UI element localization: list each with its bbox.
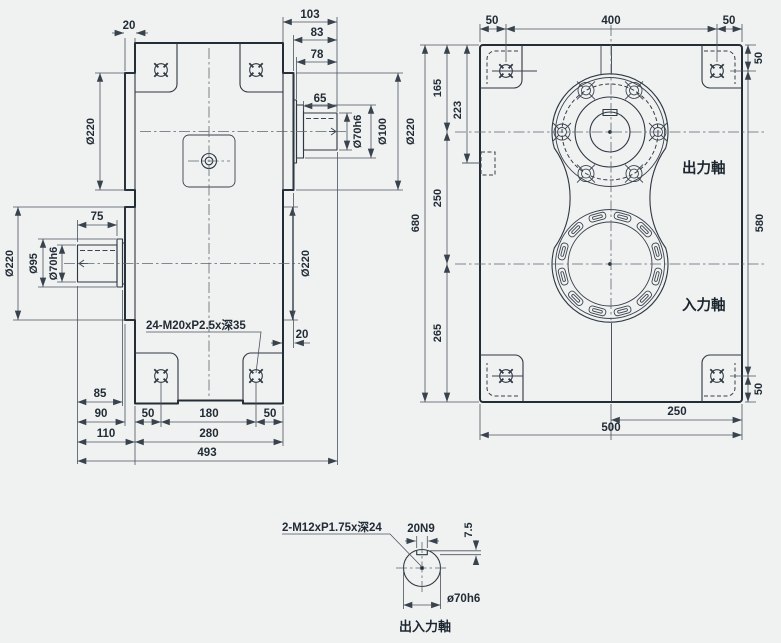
output-shaft-label: 出力軸 (682, 159, 726, 177)
dim-fv-165: 165 (432, 79, 444, 97)
dim-280: 280 (199, 428, 218, 440)
bottom-right-lug (243, 353, 283, 401)
lug-bolt-holes (154, 63, 262, 382)
dim-top-offset-20: 20 (123, 20, 136, 32)
dim-50a: 50 (142, 408, 155, 420)
dim-out-shaft-dia: Ø70h6 (352, 115, 364, 149)
shaft-end-detail: 2-M12xP1.75x深24 20N9 7.5 ø70h6 出入力軸 (282, 520, 481, 635)
dim-detail-shaft-dia: ø70h6 (447, 593, 480, 605)
side-view-dimensions: 20 103 83 78 65 Ø70h6 Ø100 Ø220 Ø220 (4, 9, 417, 465)
dim-90: 90 (95, 408, 108, 420)
dim-fv-top-50b: 50 (723, 15, 736, 27)
dim-110: 110 (97, 428, 116, 440)
dim-keyway-depth: 7.5 (463, 522, 475, 537)
dim-493: 493 (197, 447, 216, 459)
front-view: 出力軸 入力軸 50 400 50 50 580 50 680 165 (410, 15, 766, 440)
dim-65: 65 (314, 93, 327, 105)
dim-upper-boss-dia: Ø220 (85, 118, 97, 145)
dim-in-boss-dia: Ø220 (4, 250, 16, 277)
dim-keyway-width: 20N9 (407, 523, 435, 535)
dim-50b: 50 (264, 408, 277, 420)
dim-fv-250: 250 (432, 189, 444, 207)
detail-thread-note: 2-M12xP1.75x深24 (282, 520, 382, 534)
side-view: 20 103 83 78 65 Ø70h6 Ø100 Ø220 Ø220 (4, 9, 417, 465)
side-view-centerlines (64, 48, 348, 397)
dim-out-collar-dia: Ø100 (377, 118, 389, 145)
technical-drawing-page: 20 103 83 78 65 Ø70h6 Ø100 Ø220 Ø220 (0, 0, 781, 643)
output-hub (553, 78, 667, 187)
gear-housing-boss (552, 74, 668, 322)
dim-in-collar-dia: Ø95 (28, 253, 40, 274)
dim-fv-500: 500 (601, 422, 620, 434)
dim-out-boss-dia: Ø220 (405, 118, 417, 145)
gearbox-drawing-canvas: 20 103 83 78 65 Ø70h6 Ø100 Ø220 Ø220 (0, 0, 781, 643)
dim-fv-250b: 250 (667, 406, 686, 418)
bottom-left-lug (135, 353, 178, 401)
dim-fv-top-50a: 50 (486, 15, 499, 27)
dim-lower-boss-dia-right: Ø220 (300, 250, 312, 277)
dim-fv-right-50b: 50 (753, 383, 765, 395)
dim-180: 180 (199, 408, 218, 420)
input-shaft (78, 239, 126, 287)
dim-fv-223: 223 (452, 101, 464, 119)
rib-lines (601, 45, 612, 402)
dim-fv-400: 400 (601, 15, 620, 27)
dim-85: 85 (94, 388, 107, 400)
dim-in-shaft-dia: Ø70h6 (48, 247, 60, 281)
input-shaft-label: 入力軸 (682, 296, 726, 314)
dim-fv-right-50a: 50 (753, 52, 765, 64)
dim-fv-580: 580 (754, 214, 766, 232)
bolt-pattern-note: 24-M20xP2.5x深35 (146, 318, 246, 332)
dim-fv-680: 680 (410, 214, 422, 232)
dim-75: 75 (91, 211, 104, 223)
dim-fv-265: 265 (432, 324, 444, 342)
dim-103: 103 (300, 9, 319, 21)
input-hub (556, 210, 665, 319)
detail-caption: 出入力軸 (399, 619, 451, 635)
upper-left-boss-face (125, 73, 135, 190)
dim-83: 83 (311, 27, 324, 39)
dim-right-offset-20: 20 (296, 329, 309, 341)
dim-78: 78 (311, 49, 324, 61)
top-left-lug (135, 43, 177, 92)
